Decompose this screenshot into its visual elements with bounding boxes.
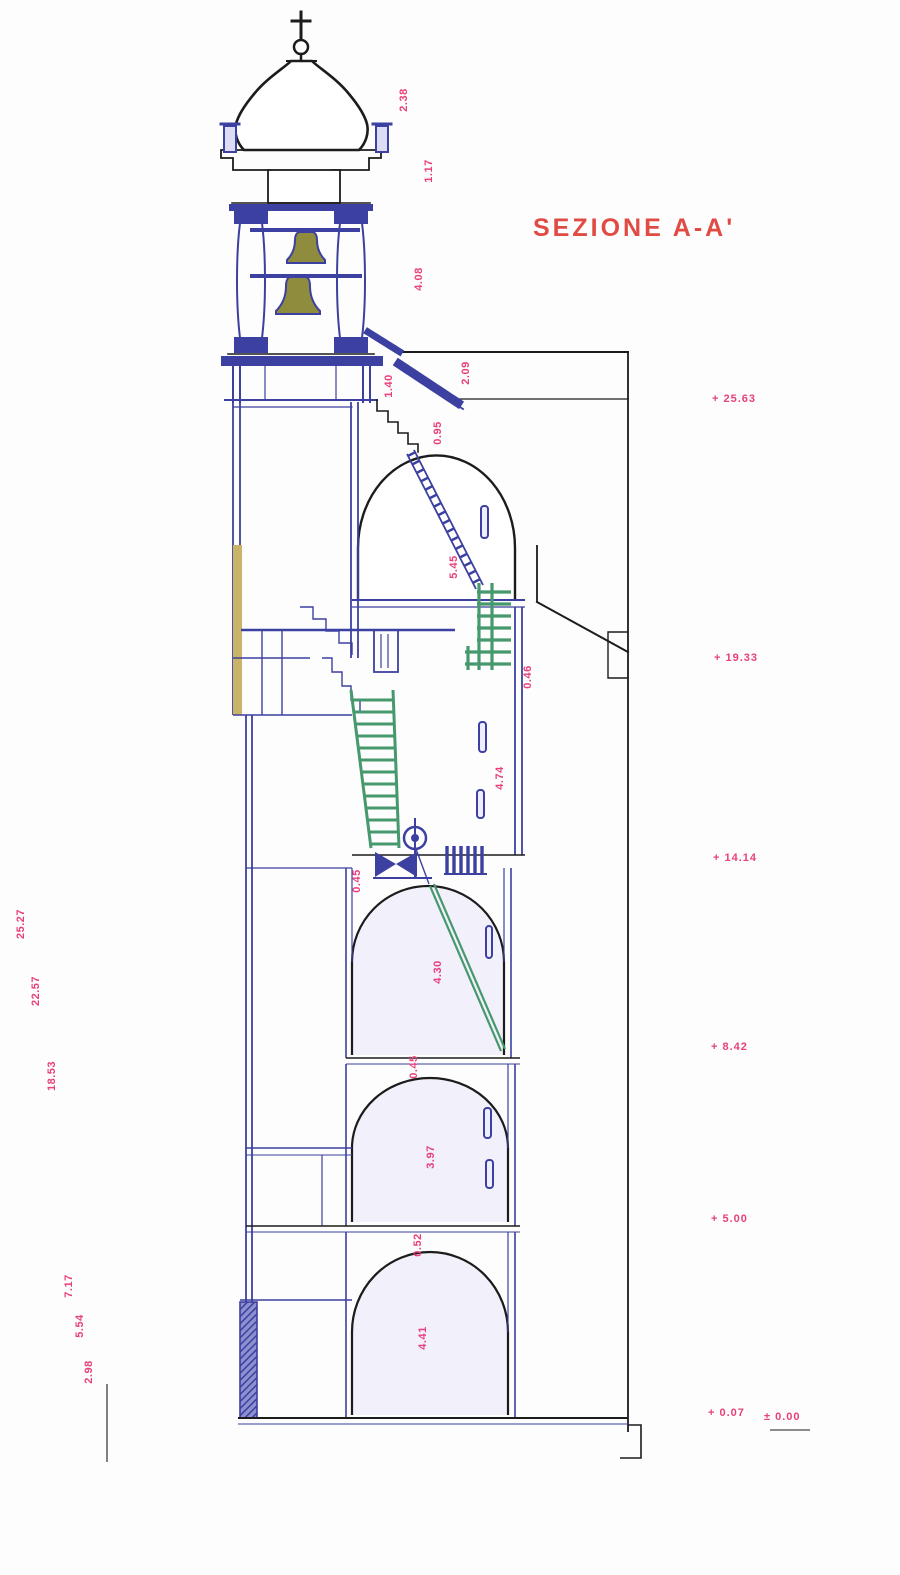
slit-window xyxy=(479,722,486,752)
elevation-marker: + 14.14 xyxy=(713,852,757,864)
wall-footing xyxy=(620,1425,641,1458)
slit-window xyxy=(481,506,488,538)
masonry-strip xyxy=(233,545,242,715)
elevation-marker: + 8.42 xyxy=(711,1041,748,1053)
dome xyxy=(235,61,367,150)
elevation-marker: + 25.63 xyxy=(712,393,756,405)
attic-block xyxy=(268,170,340,203)
fourth-vault-room xyxy=(246,1064,520,1232)
tower-base-walls xyxy=(225,366,377,407)
belfry-cornice xyxy=(229,204,373,211)
vault xyxy=(352,1252,508,1415)
dimension-label: 4.74 xyxy=(494,766,506,789)
stair-steps-b xyxy=(322,658,360,712)
dimension-label: 4.30 xyxy=(432,960,444,983)
section-drawing xyxy=(0,0,900,1575)
dimension-label: 18.53 xyxy=(46,1061,58,1091)
elevation-marker: + 0.07 xyxy=(708,1407,745,1419)
dimension-label: 5.54 xyxy=(74,1314,86,1337)
cross-finial xyxy=(292,12,310,39)
dimension-label: 0.45 xyxy=(408,1055,420,1078)
bell-tower xyxy=(221,12,391,407)
left-outer-wall xyxy=(233,402,352,1418)
hoist-mechanism xyxy=(373,818,487,884)
bottom-vault-room xyxy=(238,1232,628,1424)
bell-upper xyxy=(287,232,325,263)
roof-hatch-small xyxy=(367,330,401,352)
upper-vault-room xyxy=(351,402,537,658)
wall-niche xyxy=(608,632,628,678)
dimension-label: 2.38 xyxy=(398,88,410,111)
dome-cornice xyxy=(221,150,381,170)
green-stair-long xyxy=(351,690,399,848)
dimension-label: 0.45 xyxy=(351,869,363,892)
elevation-marker: + 19.33 xyxy=(714,652,758,664)
dimension-label: 3.97 xyxy=(425,1145,437,1168)
right-outer-wall xyxy=(608,352,641,1458)
roof-steps xyxy=(377,400,418,452)
elevation-marker: + 5.00 xyxy=(711,1213,748,1225)
drawing-canvas: SEZIONE A-A' + 25.63 + 19.33 + 14.14 + 8… xyxy=(0,0,900,1575)
bells xyxy=(276,232,325,314)
tower-base-cornice xyxy=(221,356,383,366)
dimension-label: 4.41 xyxy=(417,1326,429,1349)
dimension-label: 1.17 xyxy=(423,159,435,182)
slit-window xyxy=(484,1108,491,1138)
masonry-pier xyxy=(240,1302,257,1418)
dimension-label: 7.17 xyxy=(63,1274,75,1297)
landing-block xyxy=(374,630,398,672)
dimension-label: 2.09 xyxy=(460,361,472,384)
dimension-label: 2.98 xyxy=(83,1360,95,1383)
slit-window xyxy=(486,1160,493,1188)
elevation-marker: ± 0.00 xyxy=(764,1411,801,1423)
roof-hatch-main xyxy=(397,361,463,409)
slit-window xyxy=(486,926,492,958)
dimension-label: 22.57 xyxy=(30,976,42,1006)
bell-lower xyxy=(276,277,320,314)
dimension-label: 5.45 xyxy=(448,555,460,578)
dimension-label: 0.46 xyxy=(522,665,534,688)
dimension-label: 0.52 xyxy=(412,1233,424,1256)
dimension-label: 25.27 xyxy=(15,909,27,939)
drawing-title: SEZIONE A-A' xyxy=(533,214,735,243)
vault xyxy=(352,886,504,1055)
slit-window xyxy=(477,790,484,818)
upper-vault xyxy=(358,455,515,600)
grate xyxy=(444,846,487,874)
dimension-label: 1.40 xyxy=(383,374,395,397)
dimension-label: 4.08 xyxy=(413,267,425,290)
orb-finial xyxy=(294,40,308,54)
dimension-label: 0.95 xyxy=(432,421,444,444)
